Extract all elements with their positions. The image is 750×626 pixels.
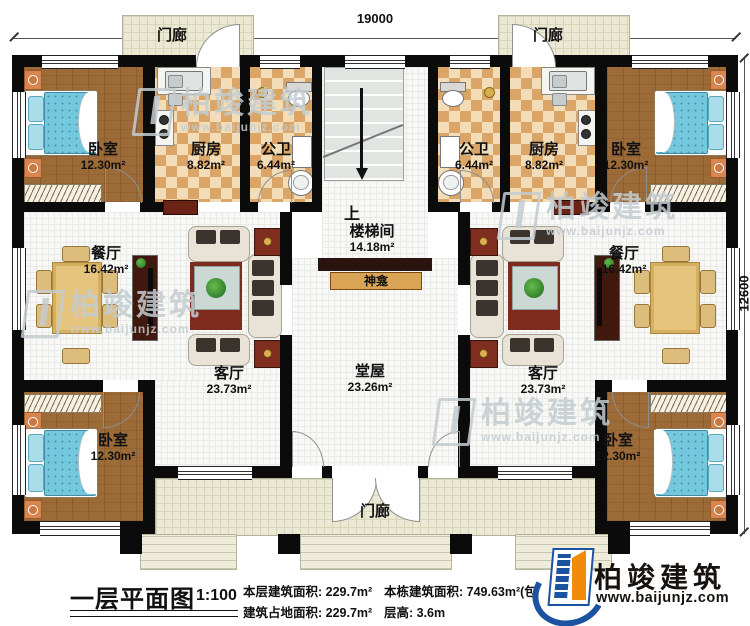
stat-floor-area: 本层建筑面积: 229.7m²	[243, 581, 372, 600]
room-label-porch-tl: 门廊	[157, 28, 187, 45]
window	[12, 248, 26, 330]
floor-drain-icon	[257, 87, 268, 98]
stairs-up-label: 上	[344, 206, 360, 224]
window	[40, 521, 120, 536]
room-label-living-l: 客厅23.73m²	[207, 366, 252, 396]
wall	[280, 335, 292, 466]
drawing-title: 一层平面图	[70, 579, 195, 614]
pillow-icon	[28, 96, 44, 122]
wall	[12, 202, 105, 212]
chair-icon	[36, 270, 52, 294]
wall	[143, 67, 155, 212]
sofa-cushion	[534, 338, 554, 352]
tv-icon	[148, 268, 153, 326]
dimension-tick	[9, 32, 19, 42]
tv-cabinet-icon	[132, 255, 158, 341]
wall	[647, 380, 738, 392]
wall-cabinet-icon	[554, 200, 589, 215]
wall	[140, 202, 163, 212]
pillow-icon	[708, 434, 724, 462]
sofa-cushion	[252, 260, 274, 276]
wardrobe-icon	[24, 184, 102, 203]
wall	[312, 67, 322, 212]
sofa-cushion	[510, 230, 530, 244]
room-label-bath-l: 公卫6.44m²	[257, 142, 295, 172]
plant-icon	[136, 258, 146, 268]
sofa-cushion	[510, 338, 530, 352]
sofa-cushion	[196, 338, 216, 352]
chair-icon	[700, 304, 716, 328]
room-label-dining-l: 餐厅16.42m²	[84, 246, 129, 276]
logo-building-orange	[572, 550, 586, 600]
chair-icon	[102, 304, 118, 328]
wardrobe-icon	[650, 394, 728, 413]
sofa-cushion	[476, 300, 498, 316]
wall	[418, 466, 428, 478]
sofa-cushion	[476, 280, 498, 296]
sofa-cushion	[196, 230, 216, 244]
stove-burner	[581, 129, 591, 139]
wall	[492, 202, 510, 212]
stat-storey-height: 层高: 3.6m	[384, 602, 445, 621]
wall	[240, 202, 258, 212]
stove-burner	[581, 115, 591, 125]
entry-steps	[140, 534, 237, 570]
room-label-bath-r: 公卫6.44m²	[455, 142, 493, 172]
window	[726, 425, 740, 495]
window	[178, 466, 252, 480]
nightstand-icon	[24, 158, 42, 178]
stat-total-area: 本栋建筑面积: 749.63m²(包	[384, 581, 537, 600]
window	[630, 521, 710, 536]
wall	[280, 212, 292, 285]
sofa-cushion	[476, 260, 498, 276]
end-table-knob	[479, 349, 488, 358]
stairs-direction-arrow	[360, 88, 363, 168]
chair-icon	[36, 304, 52, 328]
sofa-cushion	[220, 230, 240, 244]
logo-website-url: www.baijunjz.com	[596, 590, 729, 606]
pillow-icon	[28, 124, 44, 150]
wall	[500, 67, 510, 212]
kitchen-sink-icon	[549, 71, 587, 91]
chair-icon	[634, 304, 650, 328]
window	[632, 55, 708, 69]
shrine-shelf	[318, 258, 432, 271]
nightstand-icon	[24, 70, 42, 90]
stove-burner	[159, 129, 169, 139]
wall	[428, 67, 438, 212]
porch-post	[450, 534, 472, 554]
wall	[143, 380, 155, 534]
sofa-cushion	[534, 230, 554, 244]
pillow-icon	[28, 464, 44, 492]
entry-steps	[300, 534, 452, 570]
kitchen-sink-icon	[165, 71, 203, 91]
room-label-hall: 堂屋23.26m²	[348, 364, 393, 394]
dimension-right-value: 12600	[737, 266, 750, 322]
wall	[458, 212, 470, 285]
window	[498, 466, 572, 480]
room-label-kitchen-r: 厨房8.82m²	[525, 142, 563, 172]
stairs-arrow-head	[356, 168, 368, 180]
chair-icon	[662, 348, 690, 364]
chair-icon	[62, 348, 90, 364]
pillow-icon	[708, 124, 724, 150]
wall	[290, 202, 322, 212]
window	[260, 55, 300, 69]
wall	[240, 67, 250, 212]
wall	[645, 202, 738, 212]
stat-footprint-area: 建筑占地面积: 229.7m²	[243, 602, 372, 621]
room-label-bedroom-br: 卧室12.30m²	[596, 433, 641, 463]
drawing-scale: 1:100	[196, 587, 237, 605]
title-underline	[70, 610, 238, 617]
window	[450, 55, 490, 69]
window	[12, 425, 26, 495]
sofa-cushion	[252, 300, 274, 316]
wall	[322, 466, 332, 478]
stove-burner	[159, 115, 169, 125]
plant-icon	[524, 278, 544, 298]
room-label-porch-bottom: 门廊	[360, 504, 390, 521]
room-label-bedroom-bl: 卧室12.30m²	[91, 433, 136, 463]
wall	[587, 202, 610, 212]
nightstand-icon	[24, 500, 42, 519]
sofa-cushion	[252, 280, 274, 296]
toilet-bowl	[288, 90, 310, 107]
porch-post	[278, 534, 300, 554]
room-label-bedroom-tl: 卧室12.30m²	[81, 142, 126, 172]
wall	[595, 67, 607, 212]
window	[12, 92, 26, 158]
plant-icon	[206, 278, 226, 298]
end-table-knob	[479, 237, 488, 246]
sofa-cushion	[220, 338, 240, 352]
pillow-icon	[708, 96, 724, 122]
chair-icon	[700, 270, 716, 294]
chair-icon	[662, 246, 690, 262]
wall	[12, 380, 103, 392]
company-logo: 柏竣建筑 www.baijunjz.com	[536, 546, 748, 624]
floor-plan: 19000 12600	[0, 0, 750, 626]
window	[726, 92, 740, 158]
window	[345, 55, 405, 69]
end-table-knob	[263, 237, 272, 246]
room-label-dining-r: 餐厅16.42m²	[602, 246, 647, 276]
end-table-knob	[263, 349, 272, 358]
wardrobe-icon	[24, 394, 102, 413]
room-label-bedroom-tr: 卧室12.30m²	[604, 142, 649, 172]
dimension-top-value: 19000	[330, 11, 420, 26]
toilet-bowl	[442, 90, 464, 107]
pillow-icon	[708, 464, 724, 492]
shrine-label: 神龛	[330, 272, 422, 290]
wall-cabinet-icon	[163, 200, 198, 215]
stairs-icon	[324, 67, 404, 181]
room-label-stairwell: 楼梯间14.18m²	[349, 224, 394, 254]
wardrobe-icon	[650, 184, 728, 203]
room-label-living-r: 客厅23.73m²	[521, 366, 566, 396]
dining-table-icon	[650, 262, 700, 334]
porch-post	[120, 534, 142, 554]
room-label-kitchen-l: 厨房8.82m²	[187, 142, 225, 172]
floor-drain-icon	[484, 87, 495, 98]
pillow-icon	[28, 434, 44, 462]
window	[42, 55, 118, 69]
wall	[428, 202, 460, 212]
dimension-tick	[731, 32, 741, 42]
tv-icon	[597, 268, 602, 326]
room-label-porch-tr: 门廊	[533, 28, 563, 45]
